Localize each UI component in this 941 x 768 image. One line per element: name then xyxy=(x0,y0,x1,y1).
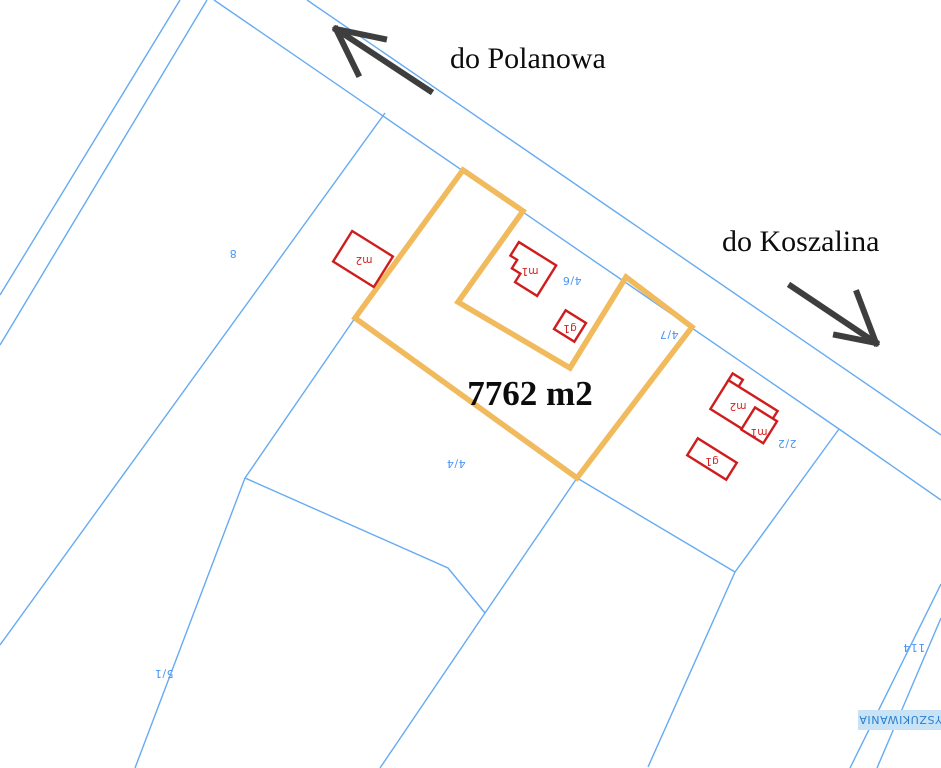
boundary-22-south xyxy=(577,478,735,572)
parcel-label-4-6: 4/6 xyxy=(562,274,581,287)
building-label-m2-right: m2 xyxy=(730,400,747,412)
parcel114-line-1 xyxy=(850,584,941,768)
parcel8-boundary xyxy=(0,113,385,645)
arrow-to-polanow xyxy=(336,29,430,91)
arrow-to-koszalin xyxy=(791,286,876,343)
building-label-g1-central: g1 xyxy=(563,322,576,334)
building-label-m1-right: m1 xyxy=(751,426,768,438)
search-badge-label: WYSZUKIWANIA xyxy=(859,713,941,726)
building-complex-right xyxy=(710,373,786,443)
boundary-44-22 xyxy=(485,478,577,613)
search-badge[interactable]: WYSZUKIWANIA xyxy=(858,710,941,730)
plot-outline-7762m2 xyxy=(355,170,692,478)
boundary-51-east xyxy=(135,478,245,768)
direction-label-koszalin: do Koszalina xyxy=(722,225,879,258)
road-upper-edge xyxy=(307,0,941,435)
path-strip-line-2 xyxy=(0,0,207,345)
parcel-label-2-2: 2/2 xyxy=(777,437,796,450)
boundary-44-south xyxy=(245,478,485,613)
parcel-label-4-4: 4/4 xyxy=(446,457,465,470)
cadastral-map: m2 m1 g1 m2 m1 g1 8 4/6 4/7 4/4 2/2 5/1 … xyxy=(0,0,941,768)
map-svg: m2 m1 g1 m2 m1 g1 8 4/6 4/7 4/4 2/2 5/1 … xyxy=(0,0,941,768)
boundary-c-corner xyxy=(245,318,355,478)
parcel-label-114: 114 xyxy=(903,641,926,654)
building-label-m1-central: m1 xyxy=(522,265,539,277)
parcel-label-8: 8 xyxy=(229,247,237,260)
parcel-label-5-1: 5/1 xyxy=(154,667,173,680)
boundary-22-southwest xyxy=(648,572,735,767)
path-strip-line-1 xyxy=(0,0,180,295)
building-label-g1-right: g1 xyxy=(705,455,718,467)
parcel-label-4-7: 4/7 xyxy=(659,328,678,341)
buildings xyxy=(333,231,786,480)
building-label-m2-left: m2 xyxy=(356,254,373,266)
plot-area-label: 7762 m2 xyxy=(467,374,592,413)
boundary-44-west-lower xyxy=(380,613,485,768)
direction-label-polanow: do Polanowa xyxy=(450,42,606,75)
parcel-labels: 8 4/6 4/7 4/4 2/2 5/1 114 xyxy=(154,247,925,680)
